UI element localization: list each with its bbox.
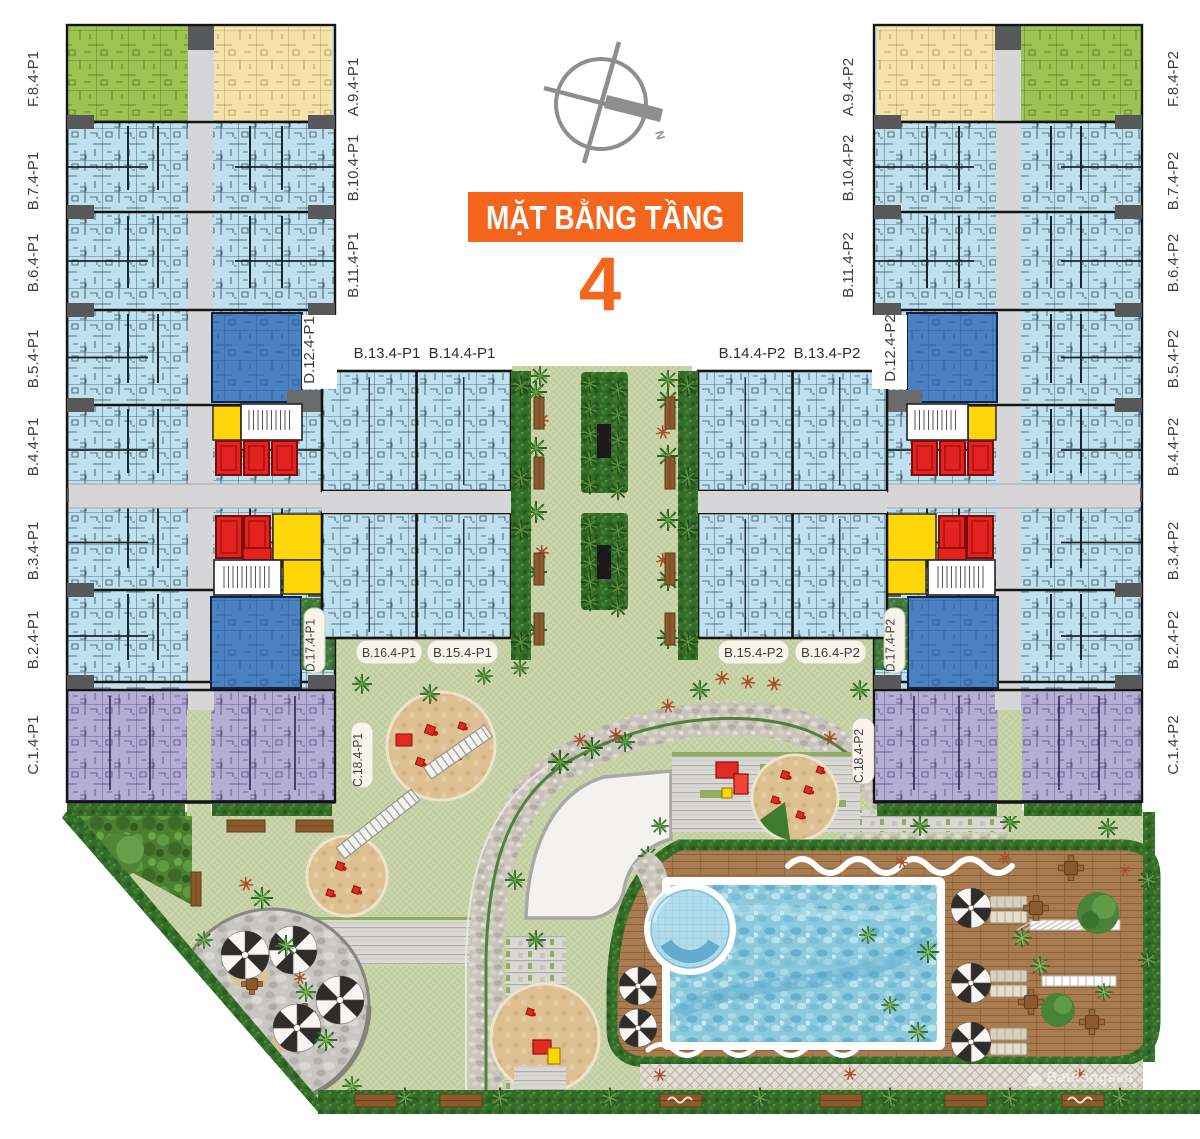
svg-text:B.3.4-P2: B.3.4-P2 — [1165, 522, 1182, 580]
svg-text:F.8.4-P2: F.8.4-P2 — [1165, 51, 1182, 107]
svg-text:C.18.4-P1: C.18.4-P1 — [350, 733, 365, 787]
svg-text:B.10.4-P1: B.10.4-P1 — [345, 135, 362, 202]
svg-text:C.1.4-P1: C.1.4-P1 — [25, 715, 42, 774]
svg-text:B.13.4-P1: B.13.4-P1 — [354, 345, 421, 362]
svg-text:A.9.4-P1: A.9.4-P1 — [345, 58, 362, 116]
svg-text:D.12.4-P1: D.12.4-P1 — [301, 316, 318, 384]
svg-text:B.4.4-P2: B.4.4-P2 — [1165, 418, 1182, 476]
svg-text:B.6.4-P1: B.6.4-P1 — [25, 234, 42, 292]
svg-text:B.5.4-P1: B.5.4-P1 — [25, 330, 42, 388]
svg-text:B.15.4-P1: B.15.4-P1 — [433, 645, 492, 660]
svg-text:4: 4 — [579, 242, 621, 327]
svg-text:MẶT BẰNG TẦNG: MẶT BẰNG TẦNG — [486, 199, 724, 236]
svg-text:A.9.4-P2: A.9.4-P2 — [840, 58, 857, 116]
svg-text:B.11.4-P2: B.11.4-P2 — [840, 232, 857, 298]
svg-text:B.2.4-P1: B.2.4-P1 — [25, 611, 42, 669]
svg-text:C.18.4-P2: C.18.4-P2 — [851, 729, 866, 783]
svg-text:B.10.4-P2: B.10.4-P2 — [840, 135, 857, 202]
svg-text:B.7.4-P1: B.7.4-P1 — [25, 152, 42, 210]
svg-text:Batdongsan: Batdongsan — [1047, 1069, 1134, 1086]
svg-text:B.6.4-P2: B.6.4-P2 — [1165, 234, 1182, 292]
svg-text:B.4.4-P1: B.4.4-P1 — [25, 418, 42, 476]
svg-text:B.3.4-P1: B.3.4-P1 — [25, 522, 42, 580]
svg-text:B.13.4-P2: B.13.4-P2 — [794, 345, 861, 362]
svg-text:F.8.4-P1: F.8.4-P1 — [25, 51, 42, 107]
svg-text:B.16.4-P1: B.16.4-P1 — [362, 645, 416, 660]
svg-text:B.11.4-P1: B.11.4-P1 — [345, 232, 362, 298]
svg-text:D.12.4-P2: D.12.4-P2 — [882, 314, 899, 382]
svg-text:C.1.4-P2: C.1.4-P2 — [1165, 715, 1182, 774]
svg-text:B.14.4-P2: B.14.4-P2 — [719, 345, 786, 362]
svg-text:B.2.4-P2: B.2.4-P2 — [1165, 611, 1182, 669]
svg-text:B.16.4-P2: B.16.4-P2 — [801, 645, 860, 660]
svg-text:D.17.4-P1: D.17.4-P1 — [303, 619, 318, 672]
svg-text:B.5.4-P2: B.5.4-P2 — [1165, 330, 1182, 388]
svg-text:B.14.4-P1: B.14.4-P1 — [429, 345, 496, 362]
svg-text:B.7.4-P2: B.7.4-P2 — [1165, 152, 1182, 210]
svg-text:D.17.4-P2: D.17.4-P2 — [883, 619, 898, 672]
svg-text:B.15.4-P2: B.15.4-P2 — [724, 645, 783, 660]
